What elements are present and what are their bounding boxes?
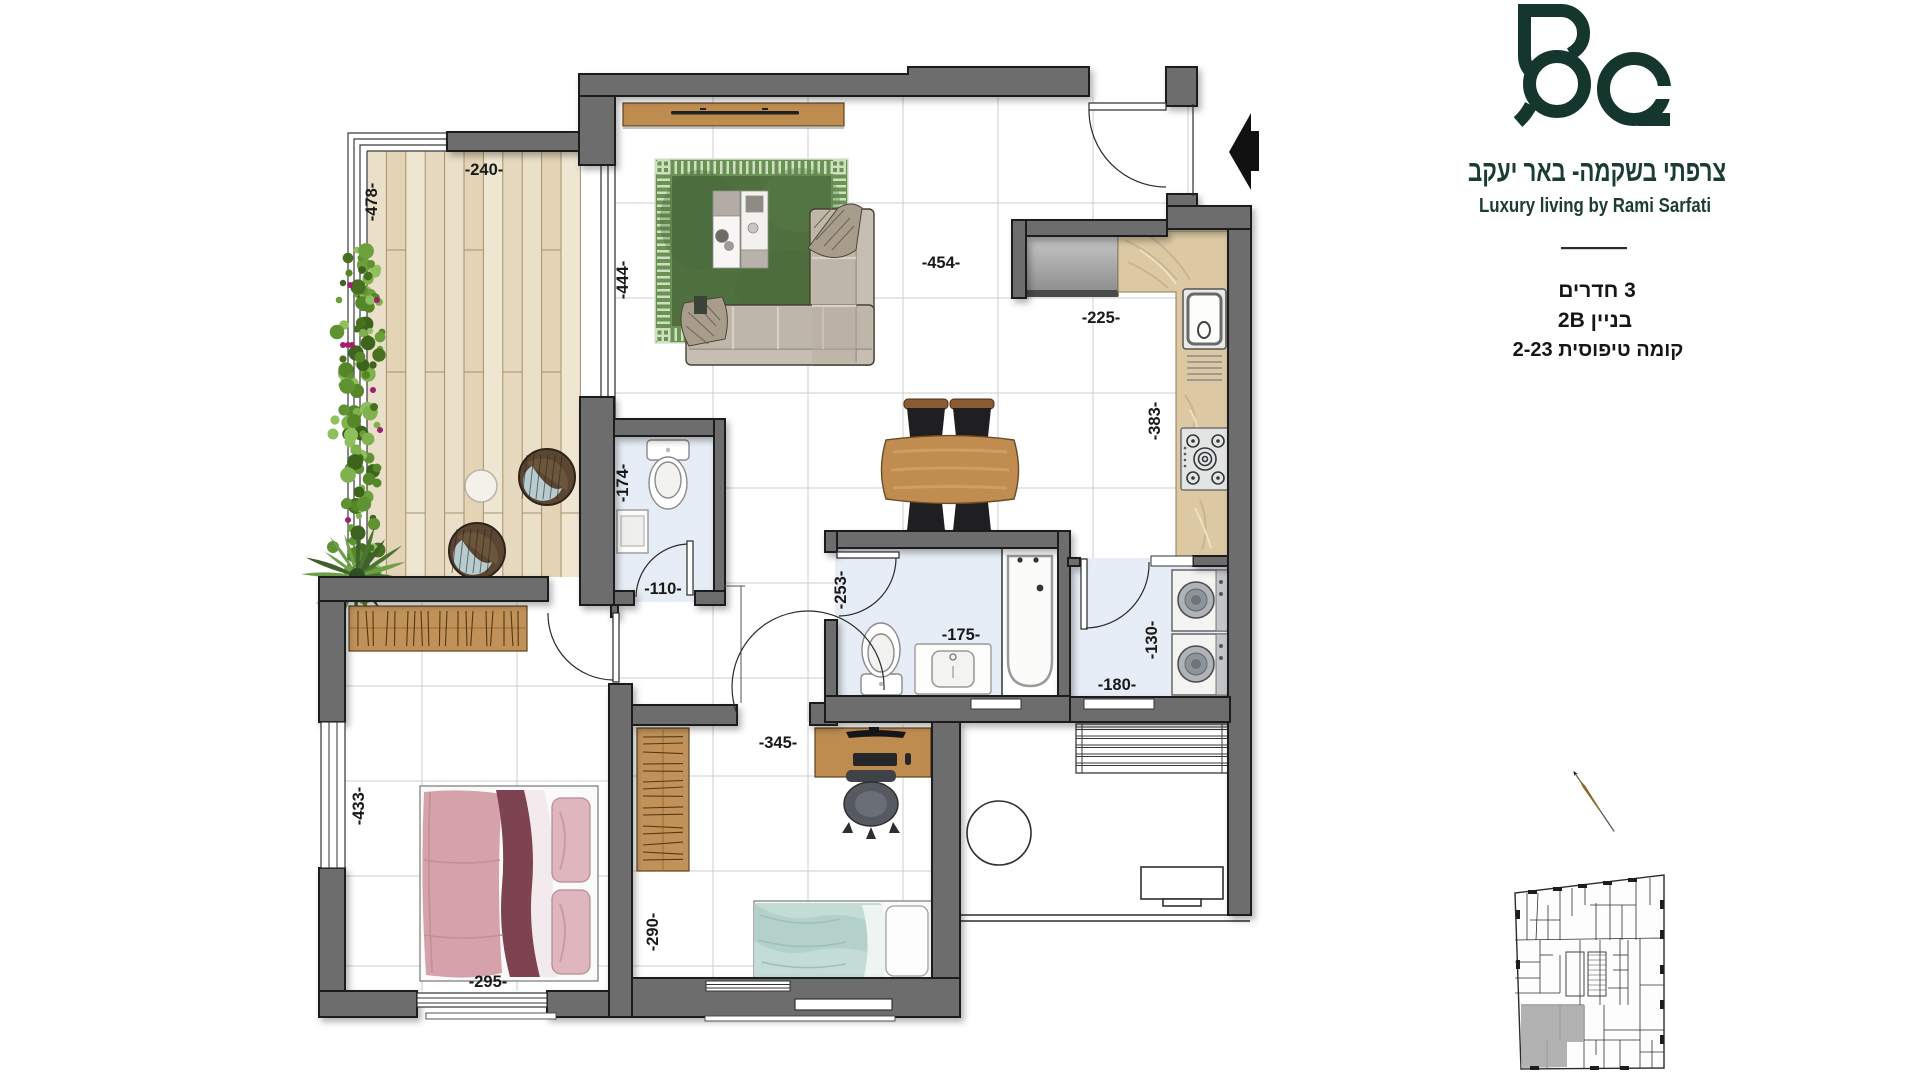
svg-text:-383-: -383-	[1146, 402, 1164, 441]
svg-text:Luxury living by Rami Sarfati: Luxury living by Rami Sarfati	[1479, 195, 1711, 217]
svg-text:-454-: -454-	[922, 254, 961, 272]
svg-text:-253-: -253-	[832, 571, 850, 610]
svg-text:-444-: -444-	[614, 261, 632, 300]
svg-text:-240-: -240-	[465, 161, 504, 179]
svg-text:-478-: -478-	[363, 183, 381, 222]
svg-text:-174-: -174-	[614, 464, 632, 503]
svg-text:-130-: -130-	[1143, 621, 1161, 660]
svg-text:-175-: -175-	[942, 626, 981, 644]
svg-text:-433-: -433-	[350, 787, 368, 826]
svg-text:-225-: -225-	[1082, 309, 1121, 327]
svg-text:קומה טיפוסית 2-23: קומה טיפוסית 2-23	[1513, 339, 1684, 361]
svg-text:-110-: -110-	[644, 580, 682, 598]
svg-text:-290-: -290-	[644, 913, 662, 952]
svg-text:-295-: -295-	[469, 973, 508, 991]
svg-text:3 חדרים: 3 חדרים	[1558, 279, 1636, 302]
svg-text:בניין 2B: בניין 2B	[1558, 309, 1632, 332]
svg-text:-180-: -180-	[1098, 676, 1137, 694]
svg-text:-345-: -345-	[759, 734, 798, 752]
svg-text:צרפתי בשקמה- באר יעקב: צרפתי בשקמה- באר יעקב	[1468, 155, 1726, 188]
